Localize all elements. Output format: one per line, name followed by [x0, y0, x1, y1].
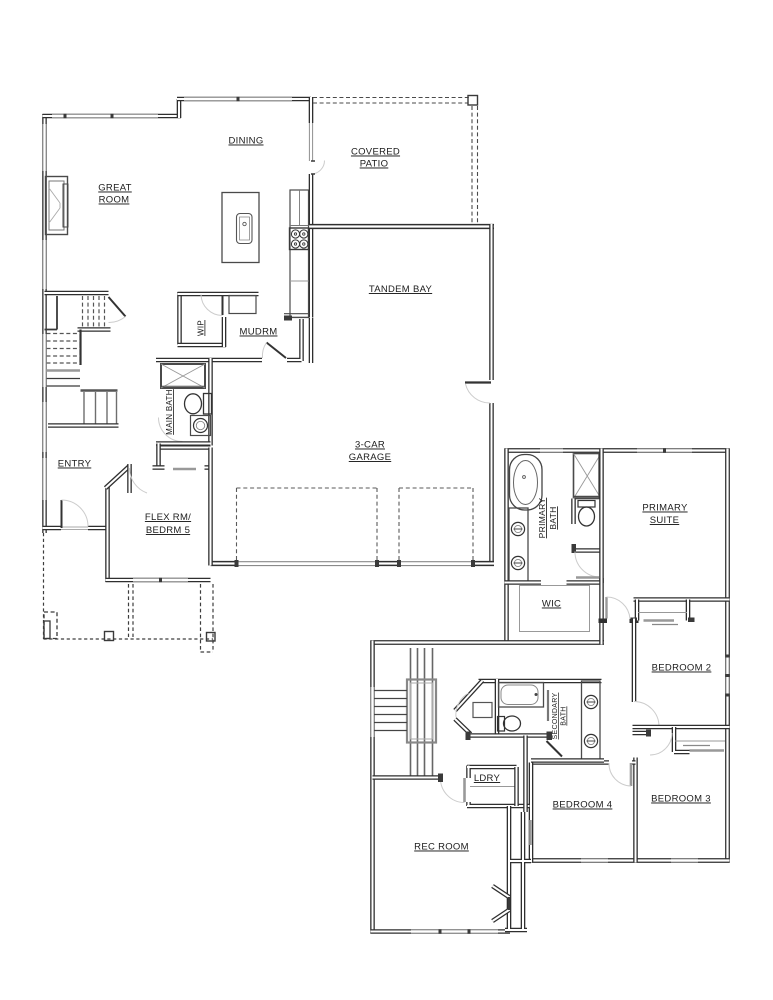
svg-text:SECONDARY: SECONDARY: [552, 693, 559, 740]
svg-text:DINING: DINING: [228, 136, 263, 147]
svg-text:3-CAR: 3-CAR: [355, 440, 385, 451]
svg-text:REC ROOM: REC ROOM: [414, 842, 469, 853]
svg-text:MAIN BATH: MAIN BATH: [165, 389, 174, 435]
svg-text:GREAT: GREAT: [98, 183, 132, 194]
svg-text:PRIMARY: PRIMARY: [642, 503, 688, 514]
svg-text:BATH: BATH: [561, 706, 568, 725]
svg-text:TANDEM BAY: TANDEM BAY: [369, 284, 433, 295]
svg-text:BEDROOM 4: BEDROOM 4: [553, 800, 613, 811]
svg-text:BATH: BATH: [548, 506, 558, 529]
svg-text:ENTRY: ENTRY: [58, 459, 92, 470]
svg-text:BEDROOM 3: BEDROOM 3: [651, 794, 711, 805]
svg-text:PRIMARY: PRIMARY: [537, 498, 547, 539]
svg-text:BEDROOM 2: BEDROOM 2: [652, 663, 712, 674]
svg-text:LDRY: LDRY: [474, 773, 501, 784]
svg-text:WIC: WIC: [542, 599, 561, 610]
svg-text:FLEX RM/: FLEX RM/: [145, 512, 191, 523]
svg-text:PATIO: PATIO: [360, 159, 389, 170]
svg-text:SUITE: SUITE: [650, 515, 679, 526]
svg-text:BEDRM 5: BEDRM 5: [146, 525, 190, 536]
svg-text:MUDRM: MUDRM: [240, 327, 278, 338]
svg-text:GARAGE: GARAGE: [349, 452, 391, 463]
svg-text:COVERED: COVERED: [351, 147, 400, 158]
svg-text:WIP: WIP: [197, 320, 206, 336]
svg-text:ROOM: ROOM: [99, 195, 130, 206]
